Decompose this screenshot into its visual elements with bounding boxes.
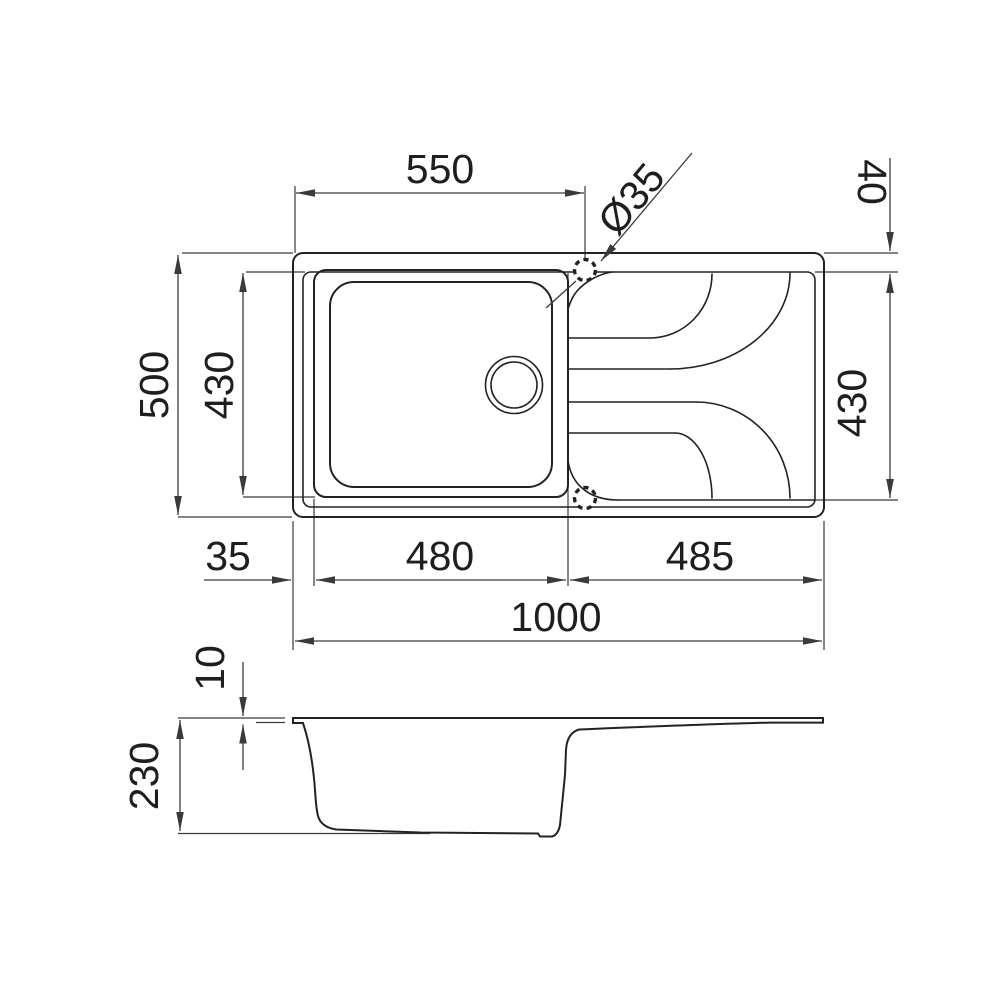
- dim-top-width-label: 550: [406, 146, 474, 192]
- drawing-svg: 550 Ø35 40 500 430 430 35 480 485 1000: [0, 0, 1000, 1000]
- side-extension-lines: [178, 718, 430, 834]
- sink-outer-edge: [293, 253, 824, 517]
- dim-drainer-width-label: 485: [666, 533, 734, 579]
- sink-inner-rim: [303, 272, 815, 507]
- dim-drainer-depth-label: 430: [829, 369, 875, 437]
- dim-tap-diameter-label: Ø35: [589, 155, 674, 244]
- bowl-section-profile: [303, 723, 770, 837]
- dim-overall-height-label: 230: [121, 742, 167, 810]
- dim-left-offset-label: 35: [205, 533, 251, 579]
- side-view: 10 230: [121, 645, 823, 836]
- drainer-grooves: [568, 273, 814, 500]
- dim-overall-width-label: 1000: [510, 594, 601, 640]
- dimension-lines: [178, 158, 890, 641]
- drain-hole: [486, 357, 543, 414]
- slab-profile: [293, 718, 823, 723]
- tap-hole-top: [575, 260, 596, 281]
- dim-bowl-depth-label: 430: [196, 351, 242, 419]
- sink-technical-drawing: 550 Ø35 40 500 430 430 35 480 485 1000: [0, 0, 1000, 1000]
- bowl-inner-edge: [330, 282, 552, 487]
- plan-view: 550 Ø35 40 500 430 430 35 480 485 1000: [131, 146, 898, 650]
- dim-ledge-depth-label: 40: [849, 159, 895, 205]
- dim-overall-depth-label: 500: [131, 351, 177, 419]
- bowl-outer-edge: [314, 270, 568, 497]
- dim-bowl-width-label: 480: [406, 533, 474, 579]
- dim-rim-thickness-label: 10: [187, 645, 233, 691]
- tap-diameter-leader-tail: [546, 281, 576, 308]
